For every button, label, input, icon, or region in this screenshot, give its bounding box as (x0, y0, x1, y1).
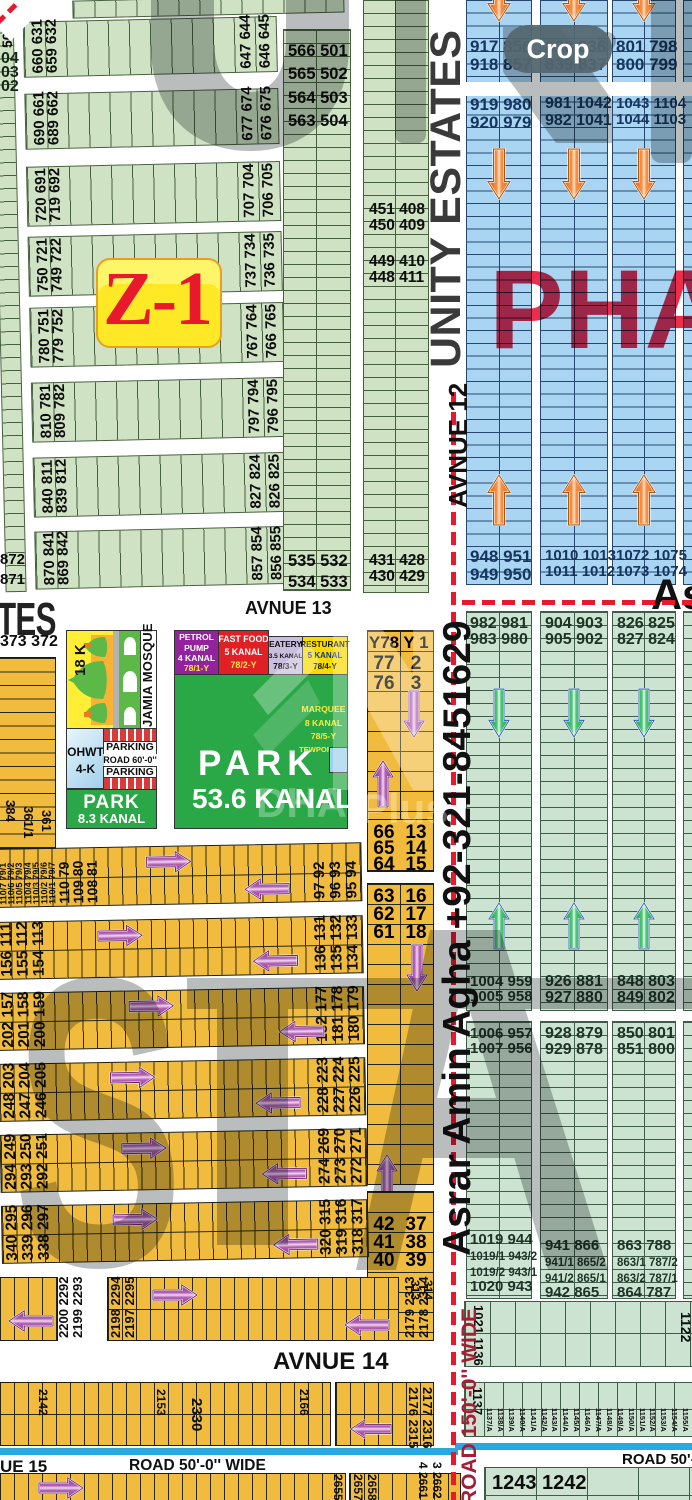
svg-text:S: S (13, 891, 184, 1353)
svg-text:DHA.: DHA. (256, 779, 359, 826)
svg-text:Plus: Plus (360, 785, 449, 832)
